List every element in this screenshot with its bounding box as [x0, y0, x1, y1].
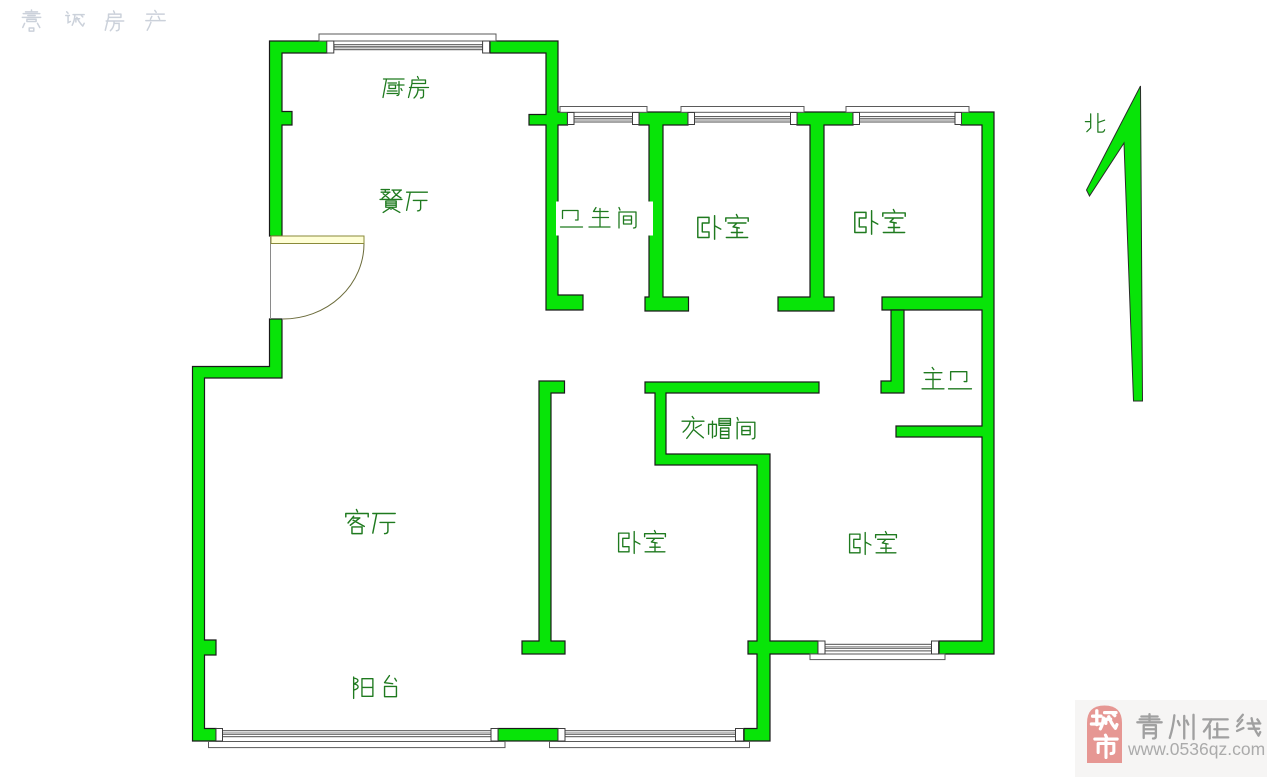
svg-text:www.0536qz.com: www.0536qz.com — [1127, 739, 1265, 759]
